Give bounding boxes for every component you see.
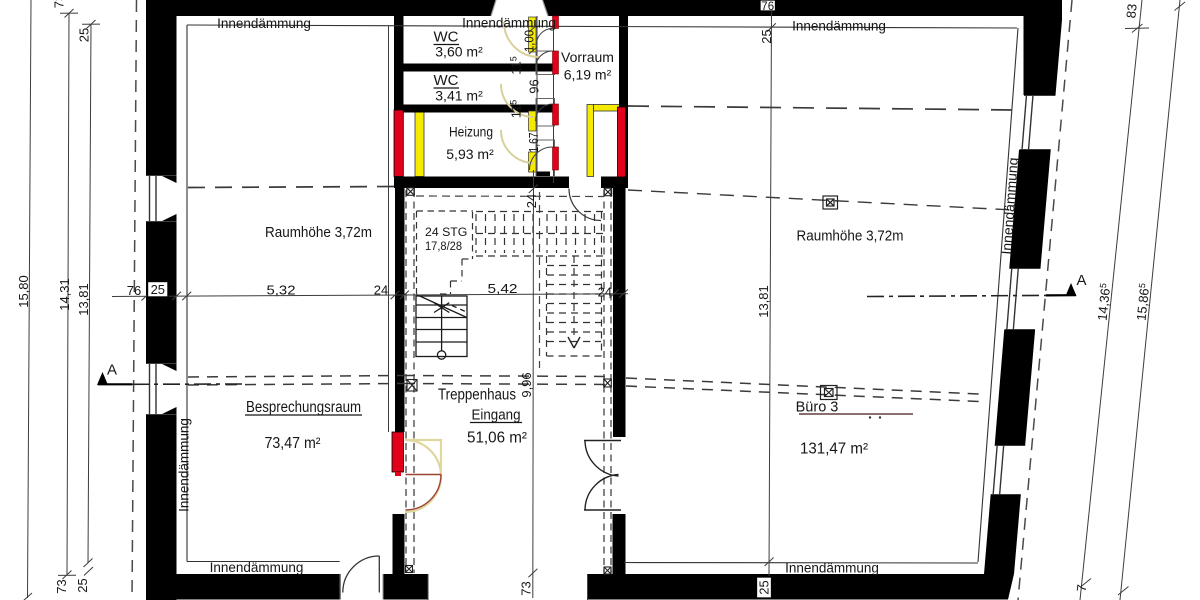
svg-text:Innendämmung: Innendämmung: [792, 19, 886, 34]
svg-text:Raumhöhe 3,72m: Raumhöhe 3,72m: [797, 228, 904, 245]
svg-text:73: 73: [52, 0, 67, 8]
svg-text:25: 25: [759, 29, 774, 43]
svg-text:24 STG: 24 STG: [425, 225, 467, 239]
svg-text:3,41 m²: 3,41 m²: [435, 88, 483, 104]
svg-text:1,67: 1,67: [526, 133, 541, 153]
svg-text:76: 76: [761, 1, 774, 13]
svg-text:7: 7: [1074, 584, 1090, 593]
svg-text:Innendämmung: Innendämmung: [462, 16, 556, 31]
svg-text:24: 24: [598, 285, 612, 300]
svg-text:1,00: 1,00: [522, 30, 537, 52]
svg-text:Vorraum: Vorraum: [561, 49, 614, 65]
svg-text:76: 76: [127, 283, 141, 298]
svg-text:25: 25: [151, 282, 165, 297]
svg-text:6,19 m²: 6,19 m²: [564, 67, 612, 83]
svg-text:96: 96: [527, 79, 542, 93]
svg-text:51,06 m²: 51,06 m²: [467, 430, 527, 447]
svg-text:Heizung: Heizung: [449, 124, 493, 140]
svg-text:73,47 m²: 73,47 m²: [265, 435, 321, 452]
svg-text:131,47 m²: 131,47 m²: [800, 441, 868, 458]
svg-text:Treppenhaus: Treppenhaus: [438, 387, 516, 404]
svg-text:25: 25: [77, 28, 92, 42]
svg-text:24: 24: [524, 194, 539, 208]
svg-text:Innendämmung: Innendämmung: [210, 560, 304, 575]
svg-text:Besprechungsraum: Besprechungsraum: [246, 399, 361, 416]
svg-text:15,80: 15,80: [16, 275, 31, 308]
svg-text:5,32: 5,32: [267, 283, 296, 298]
svg-text:5,93 m²: 5,93 m²: [446, 146, 494, 162]
svg-text:Raumhöhe 3,72m: Raumhöhe 3,72m: [265, 224, 372, 241]
svg-text:83: 83: [1123, 3, 1139, 19]
svg-text:73: 73: [519, 581, 534, 595]
svg-text:Innendämmung: Innendämmung: [177, 418, 192, 512]
svg-text:13,81: 13,81: [76, 283, 91, 316]
svg-text:Innendämmung: Innendämmung: [785, 561, 879, 576]
svg-text:17,8/28: 17,8/28: [425, 239, 462, 253]
svg-text:9,96: 9,96: [519, 372, 534, 397]
svg-text:5,42: 5,42: [488, 281, 518, 296]
svg-text:A: A: [107, 362, 117, 379]
svg-text:WC: WC: [434, 72, 459, 89]
svg-text:Innendämmung: Innendämmung: [217, 16, 311, 31]
svg-text:24: 24: [374, 282, 388, 297]
svg-text:3,60 m²: 3,60 m²: [435, 44, 483, 60]
svg-text:A: A: [1077, 272, 1087, 289]
svg-text:13,81: 13,81: [756, 285, 771, 318]
svg-text:73: 73: [54, 579, 69, 593]
svg-text:25: 25: [75, 578, 90, 592]
svg-text:14,31: 14,31: [57, 278, 72, 311]
svg-text:25: 25: [757, 580, 772, 594]
svg-text:Eingang: Eingang: [472, 408, 521, 424]
